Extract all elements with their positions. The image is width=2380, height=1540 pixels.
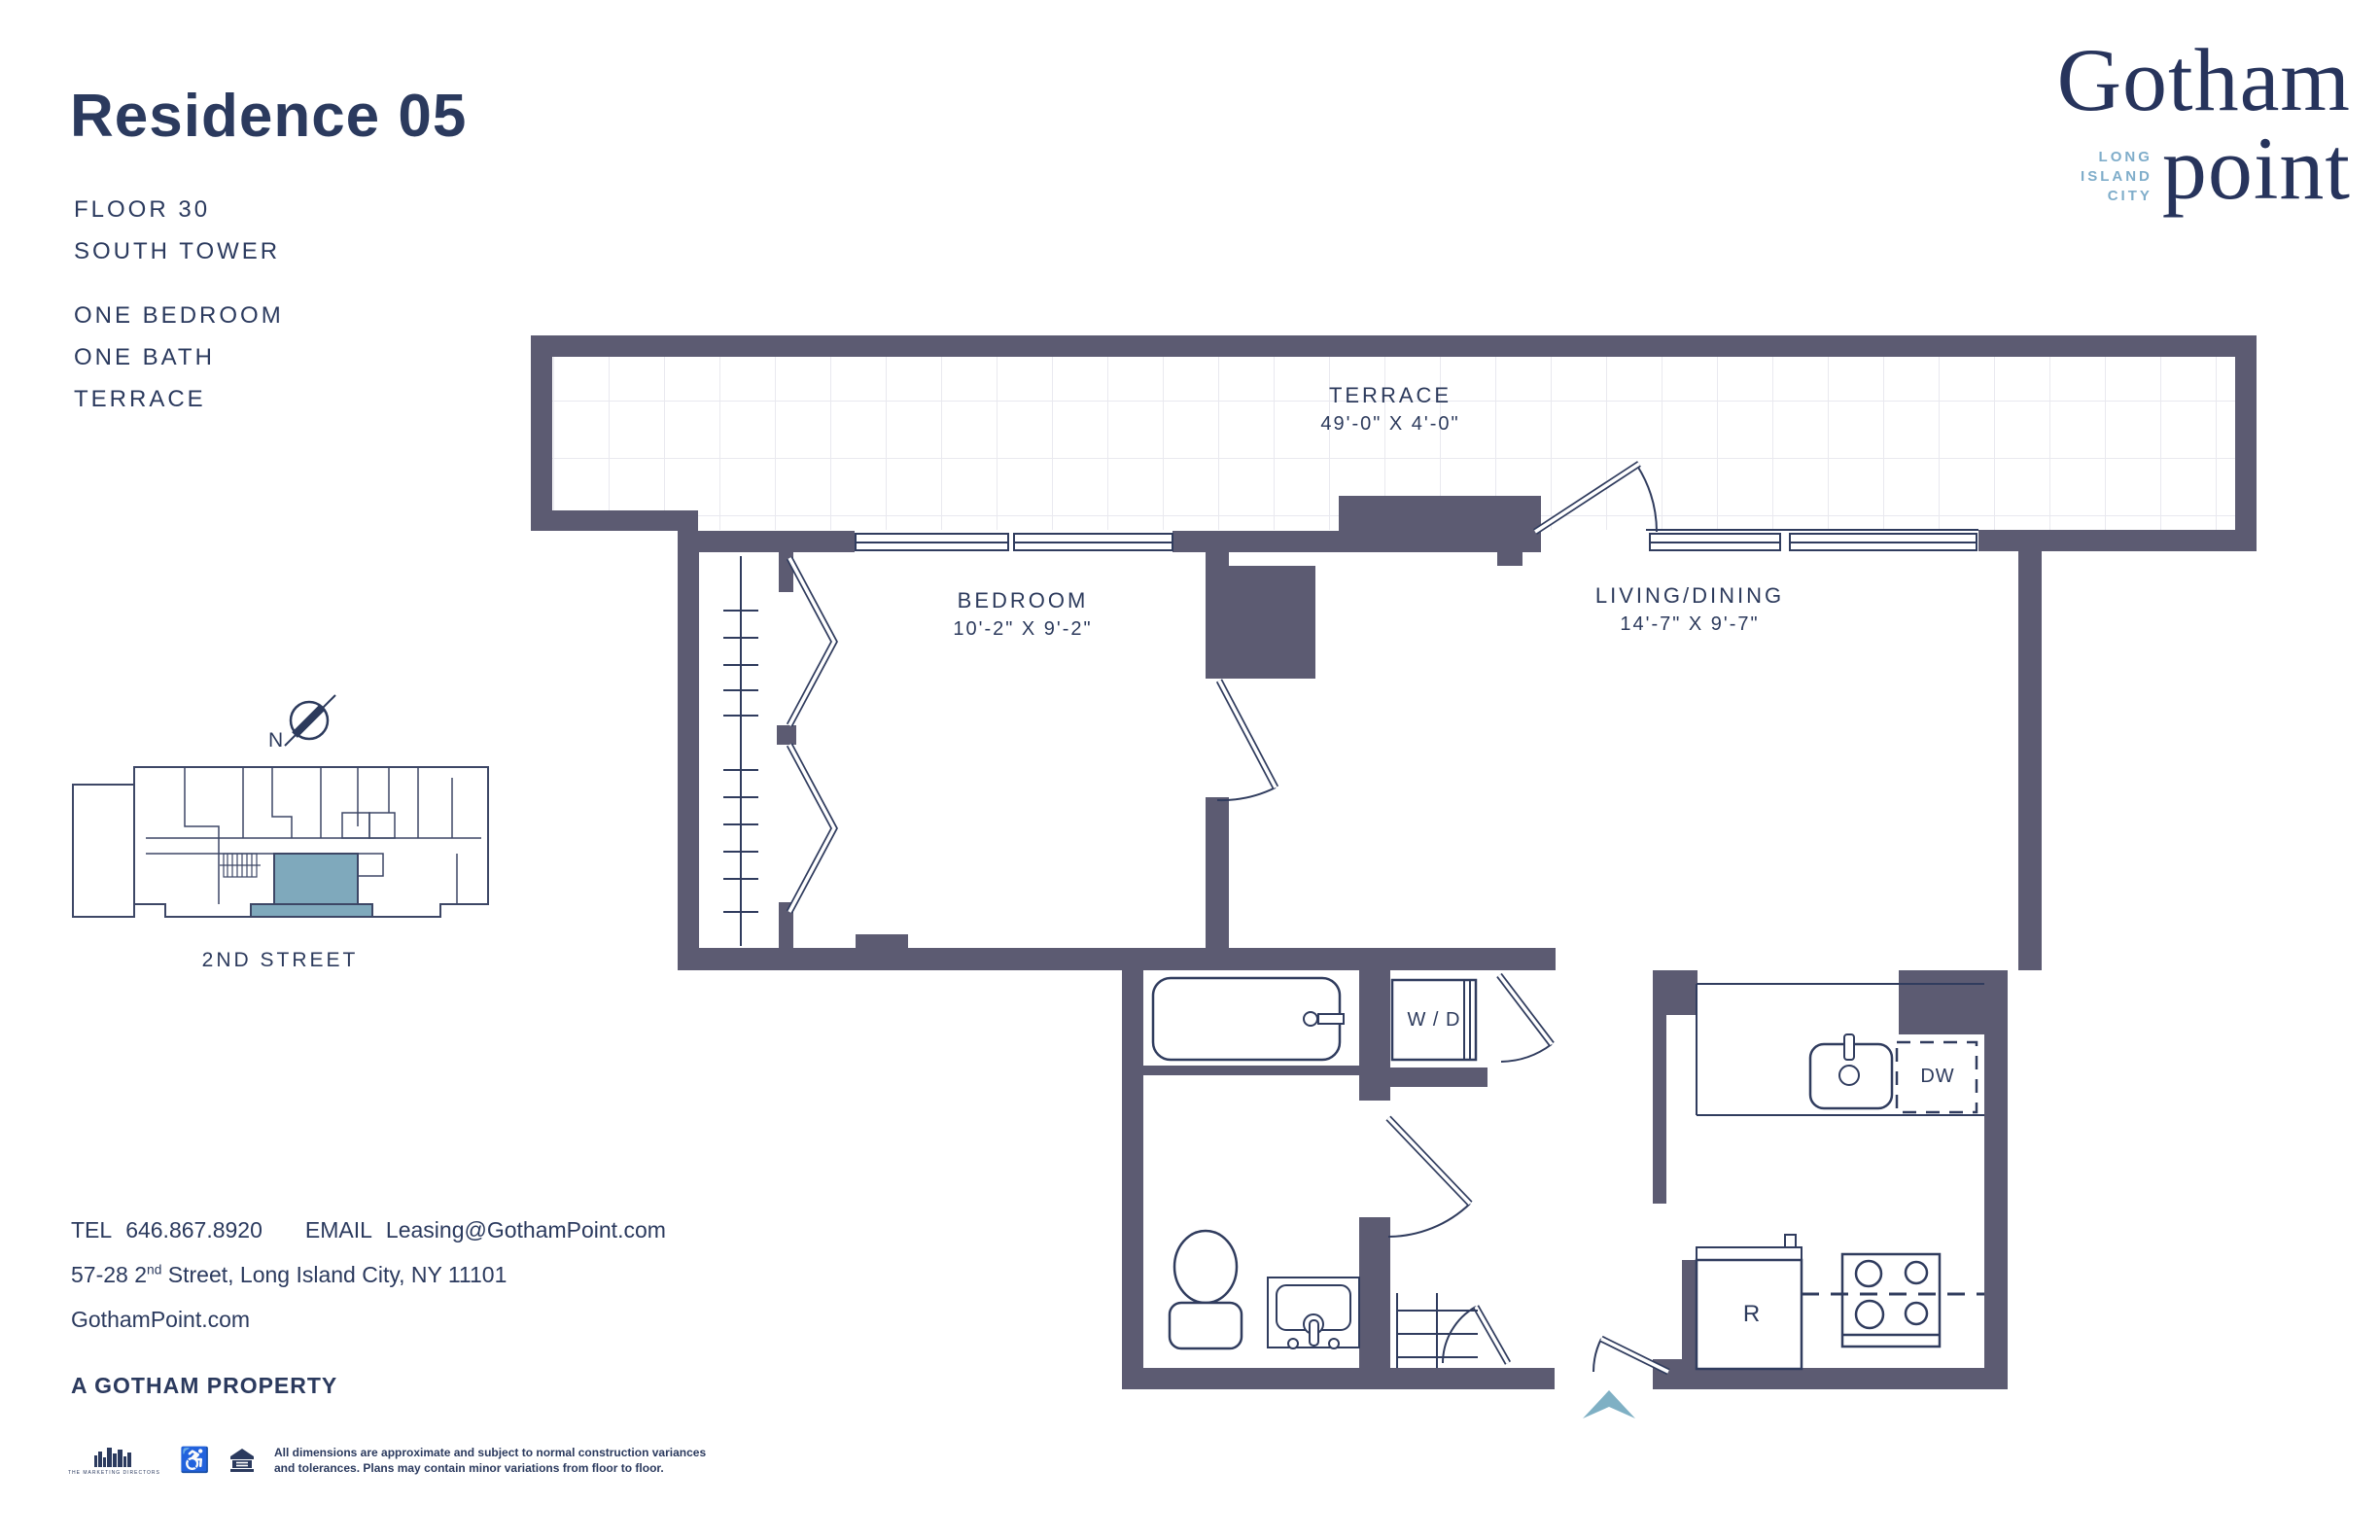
skyline-icon xyxy=(92,1446,135,1469)
toilet xyxy=(1170,1231,1242,1348)
property-tagline: A GOTHAM PROPERTY xyxy=(71,1373,337,1399)
floor-tower-block: FLOOR 30 SOUTH TOWER xyxy=(74,189,280,272)
entry-arrow-icon xyxy=(1583,1390,1635,1418)
logo-location: LONG ISLAND CITY xyxy=(2081,148,2152,206)
tel-label: TEL xyxy=(71,1217,112,1242)
refrigerator-label: R xyxy=(1723,1301,1781,1328)
compass-north-label: N xyxy=(268,729,283,752)
keyplan xyxy=(73,767,488,917)
bedroom-label: BEDROOM 10'-2" X 9'-2" xyxy=(877,588,1169,641)
washer-dryer-label: W / D xyxy=(1390,1009,1478,1032)
tower-label: SOUTH TOWER xyxy=(74,230,280,272)
street-address: 57-28 2nd Street, Long Island City, NY 1… xyxy=(71,1262,666,1288)
feature-list: ONE BEDROOM ONE BATH TERRACE xyxy=(74,295,284,420)
closet-rod xyxy=(723,556,758,946)
contact-block: TEL646.867.8920EMAILLeasing@GothamPoint.… xyxy=(71,1217,666,1351)
linen-closet xyxy=(1397,1293,1478,1368)
logo-gotham: Gotham xyxy=(1972,33,2351,126)
email-address: Leasing@GothamPoint.com xyxy=(386,1217,666,1242)
disclaimer-text: All dimensions are approximate and subje… xyxy=(274,1445,706,1476)
accessibility-icon: ♿ xyxy=(180,1449,210,1473)
gotham-point-logo: Gotham LONG ISLAND CITY point xyxy=(1972,33,2351,210)
feature-bedroom: ONE BEDROOM xyxy=(74,295,284,336)
floor-label: FLOOR 30 xyxy=(74,189,280,230)
website: GothamPoint.com xyxy=(71,1307,666,1333)
terrace-label: TERRACE 49'-0" X 4'-0" xyxy=(1244,383,1536,436)
feature-terrace: TERRACE xyxy=(74,378,284,420)
logo-point: point xyxy=(2162,126,2351,210)
dishwasher-label: DW xyxy=(1894,1066,1981,1088)
street-label: 2ND STREET xyxy=(134,949,426,972)
equal-housing-icon xyxy=(229,1448,255,1473)
compass-icon xyxy=(285,695,335,746)
page-title: Residence 05 xyxy=(70,82,467,151)
legal-footer: THE MARKETING DIRECTORS ♿ All dimensions… xyxy=(68,1445,706,1476)
marketing-directors-logo: THE MARKETING DIRECTORS xyxy=(68,1446,160,1476)
tel-number: 646.867.8920 xyxy=(125,1217,262,1242)
marketing-directors-caption: THE MARKETING DIRECTORS xyxy=(68,1470,160,1476)
living-dining-label: LIVING/DINING 14'-7" X 9'-7" xyxy=(1544,583,1836,636)
kitchen-sink xyxy=(1810,1034,1892,1108)
feature-bath: ONE BATH xyxy=(74,336,284,378)
email-label: EMAIL xyxy=(305,1217,372,1242)
bathroom-sink xyxy=(1268,1277,1359,1348)
bathtub xyxy=(1153,978,1344,1060)
